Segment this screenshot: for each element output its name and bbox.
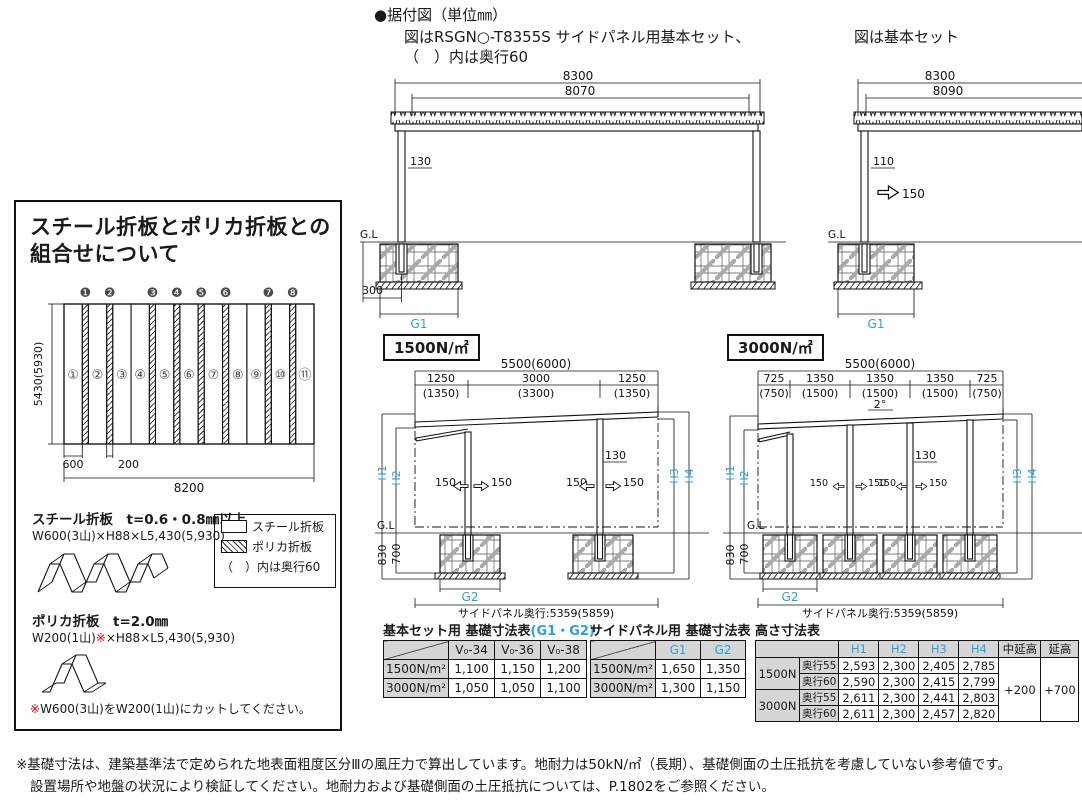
basic-col-v036: V₀-36	[495, 641, 541, 660]
svg-text:(1500): (1500)	[922, 387, 959, 400]
svg-text:1350: 1350	[926, 372, 954, 385]
height-table: H1 H2 H3 H4 中延高 延高 1500N 奥行55 2,593 2,30…	[755, 640, 1079, 722]
steel-plate-spec: W600(3山)×H88×L5,430(5,930)	[32, 527, 225, 544]
elev-sp-gl-label: G.L	[360, 229, 377, 241]
table-row: 3000N/m² 1,300 1,150	[591, 679, 746, 698]
combination-panel-title: スチール折板とポリカ折板との 組合せについて	[30, 214, 331, 268]
legend-box: スチール折板 ポリカ折板 （ ）内は奥行60	[214, 514, 336, 588]
sec3000-gl-label: G.L	[747, 520, 764, 532]
combination-title-line1: スチール折板とポリカ折板との	[30, 214, 331, 241]
poly-spec-post: ×H88×L5,430(5,930)	[106, 631, 235, 645]
svg-text:①: ①	[67, 368, 79, 383]
sec3000-post-3	[907, 423, 913, 554]
table-row: G1 G2	[591, 641, 746, 660]
table-row: 3000N/m² 1,050 1,050 1,100	[384, 679, 587, 698]
elev-basic-gl-label: G.L	[828, 229, 845, 241]
basic-table-title: 基本セット用 基礎寸法表(G1・G2)	[383, 620, 595, 639]
svg-text:700: 700	[390, 544, 403, 565]
caption-left-line2: （ ）内は奥行60	[404, 48, 750, 68]
svg-text:(1500): (1500)	[802, 387, 839, 400]
sec1500-depth-dim: サイドパネル奥行:5359(5859)	[415, 598, 658, 620]
svg-text:8300: 8300	[925, 69, 956, 83]
legend-steel-row: スチール折板	[215, 515, 335, 535]
strip-layout-diagram: ❶ ❷ ❸ ❹ ❺ ❻ ❼ ❽ ① ② ③ ④ ⑤ ⑥ ⑦ ⑧ ⑨ ⑩ ⑪ 54…	[22, 266, 332, 498]
sec3000-130-dim: 130	[915, 449, 936, 462]
svg-text:⑨: ⑨	[250, 368, 262, 383]
side-table-corner	[591, 641, 656, 660]
svg-text:5500(6000): 5500(6000)	[501, 357, 571, 371]
table-row: 1500N 奥行55 2,593 2,300 2,405 2,785 +200 …	[756, 658, 1079, 674]
svg-text:(750): (750)	[972, 387, 1002, 400]
svg-text:725: 725	[764, 372, 785, 385]
svg-text:❹: ❹	[171, 286, 183, 301]
sec1500-left-foundation	[435, 535, 505, 579]
svg-text:150: 150	[435, 476, 456, 489]
svg-text:⑤: ⑤	[159, 368, 171, 383]
footnote-line2: 設置場所や地盤の状況により検証してください。地耐力および基礎側面の土圧抵抗につい…	[16, 777, 1011, 799]
svg-text:⑪: ⑪	[298, 368, 311, 383]
elev-sp-roof-corrugation	[391, 112, 764, 124]
elev-basic-wind-arrow: 150	[878, 186, 925, 201]
table-row: H1 H2 H3 H4 中延高 延高	[756, 641, 1079, 658]
svg-text:H4: H4	[1026, 468, 1039, 483]
svg-text:H1: H1	[724, 465, 737, 480]
elevation-basic-set: 8300 8090 110 150 G.L G1	[828, 70, 1082, 332]
svg-text:H3: H3	[1011, 468, 1024, 483]
svg-text:8300: 8300	[563, 69, 594, 83]
combination-title-line2: 組合せについて	[30, 241, 331, 268]
svg-text:1350: 1350	[866, 372, 894, 385]
svg-text:④: ④	[134, 368, 146, 383]
section-3000n: 5500(6000) 725 1350 1350 1350 725 (750) …	[723, 358, 1082, 622]
sec1500-gl-label: G.L	[377, 520, 394, 532]
svg-text:(1350): (1350)	[423, 387, 460, 400]
sec1500-right-post	[597, 419, 603, 554]
elev-sp-beam	[395, 124, 758, 131]
elev-sp-left-column	[398, 131, 405, 242]
svg-text:725: 725	[977, 372, 998, 385]
svg-text:H2: H2	[390, 470, 403, 485]
poly-spec-pre: W200(1山)	[32, 631, 96, 645]
mid-extension-value: +200	[999, 658, 1041, 722]
svg-text:150: 150	[902, 187, 925, 201]
caption-right: 図は基本セット	[854, 28, 959, 48]
svg-text:⑥: ⑥	[183, 368, 195, 383]
elev-sp-dimensions: 8300 8070	[395, 69, 760, 116]
installation-diagram-page: { "header": { "title": "●据付図（単位㎜）", "cap…	[0, 0, 1082, 809]
svg-text:サイドパネル奥行:5359(5859): サイドパネル奥行:5359(5859)	[802, 606, 958, 620]
poly-strip-numbers: ❶ ❷ ❸ ❹ ❺ ❻ ❼ ❽	[79, 286, 298, 301]
svg-text:③: ③	[116, 368, 128, 383]
svg-text:G1: G1	[411, 317, 428, 331]
elev-basic-beam	[858, 124, 1082, 131]
basic-foundation-table: V₀-34 V₀-36 V₀-38 1500N/m² 1,100 1,150 1…	[383, 640, 587, 698]
cut-note-text: W600(3山)をW200(1山)にカットしてください。	[40, 702, 311, 716]
table-row: V₀-34 V₀-36 V₀-38	[384, 641, 587, 660]
caption-left-line1: 図はRSGN○-T8355S サイドパネル用基本セット、	[404, 28, 750, 48]
poly-plate-profile-icon	[38, 650, 133, 698]
svg-text:5430(5930): 5430(5930)	[32, 342, 45, 407]
steel-plate-profile-icon	[34, 546, 174, 600]
svg-text:⑦: ⑦	[208, 368, 220, 383]
svg-text:H2: H2	[738, 470, 751, 485]
svg-text:H3: H3	[668, 468, 681, 483]
poly-plate-spec: W200(1山)※×H88×L5,430(5,930)	[32, 629, 235, 646]
svg-text:(750): (750)	[759, 387, 789, 400]
elev-basic-foundation	[834, 244, 922, 289]
elev-basic-roof-corrugation	[854, 112, 1082, 124]
svg-text:G1: G1	[868, 317, 885, 331]
sec3000-post-4	[967, 420, 973, 554]
table-row: 1500N/m² 1,650 1,350	[591, 660, 746, 679]
sec3000-foundations	[760, 535, 1000, 579]
cut-note-mark: ※	[30, 702, 40, 716]
svg-text:G2: G2	[462, 590, 479, 604]
legend-steel-label: スチール折板	[252, 518, 324, 535]
svg-text:5500(6000): 5500(6000)	[845, 357, 915, 371]
footnote-line1: ※基礎寸法は、建築基準法で定められた地表面粗度区分Ⅲの風圧力で算出しています。地…	[16, 755, 1011, 777]
svg-text:150: 150	[929, 478, 947, 489]
basic-table-title-text: 基本セット用 基礎寸法表	[383, 624, 531, 639]
svg-text:❸: ❸	[147, 286, 159, 301]
svg-text:⑩: ⑩	[275, 368, 287, 383]
svg-text:②: ②	[92, 368, 104, 383]
svg-text:(1350): (1350)	[614, 387, 651, 400]
elev-basic-column	[861, 131, 868, 242]
height-table-title: 高さ寸法表	[755, 620, 820, 639]
svg-text:H4: H4	[683, 468, 696, 483]
side-panel-foundation-table: G1 G2 1500N/m² 1,650 1,350 3000N/m² 1,30…	[590, 640, 746, 698]
sec3000-roof	[758, 414, 1003, 442]
load-badge-1500: 1500N/㎡	[383, 334, 480, 361]
basic-col-v034: V₀-34	[449, 641, 495, 660]
elev-sp-left-foundation	[376, 244, 462, 289]
svg-text:❽: ❽	[287, 286, 299, 301]
basic-col-v038: V₀-38	[541, 641, 587, 660]
svg-text:⑧: ⑧	[232, 368, 244, 383]
elev-sp-right-foundation	[691, 244, 775, 289]
basic-table-corner	[384, 641, 449, 660]
svg-text:❼: ❼	[262, 286, 274, 301]
poly-swatch-icon	[221, 540, 247, 553]
poly-spec-mark: ※	[96, 631, 106, 645]
svg-text:❷: ❷	[104, 286, 116, 301]
svg-text:830: 830	[376, 545, 389, 566]
sec1500-130-dim: 130	[605, 449, 626, 462]
svg-text:(3300): (3300)	[518, 387, 555, 400]
legend-poly-row: ポリカ折板	[215, 535, 335, 555]
sec3000-g2-dim: G2	[763, 579, 817, 604]
svg-text:150: 150	[623, 476, 644, 489]
elev-basic-gap-dim: 110	[873, 155, 894, 168]
svg-text:200: 200	[118, 458, 139, 471]
section-1500n: 5500(6000) 1250 3000 1250 (1350) (3300) …	[375, 358, 709, 622]
sec1500-top-dims: 5500(6000) 1250 3000 1250 (1350) (3300) …	[415, 357, 658, 414]
elevation-side-panel-set: 8300 8070 130 G.L 300 G1	[358, 70, 788, 332]
sec1500-roof	[415, 412, 658, 441]
svg-text:8070: 8070	[565, 84, 596, 98]
svg-text:G2: G2	[782, 590, 799, 604]
svg-text:8090: 8090	[933, 84, 964, 98]
svg-text:150: 150	[878, 478, 896, 489]
svg-text:700: 700	[738, 544, 751, 565]
caption-left: 図はRSGN○-T8355S サイドパネル用基本セット、 （ ）内は奥行60	[404, 28, 750, 67]
legend-note-label: （ ）内は奥行60	[221, 558, 320, 575]
svg-text:1250: 1250	[427, 372, 455, 385]
elev-sp-right-column	[753, 131, 760, 242]
steel-swatch-icon	[221, 520, 247, 533]
elev-basic-dimensions: 8300 8090	[858, 69, 1082, 116]
svg-text:8200: 8200	[174, 481, 205, 495]
side-col-g2: G2	[701, 641, 746, 660]
side-col-g1: G1	[656, 641, 701, 660]
table-row: 1500N/m² 1,100 1,150 1,200	[384, 660, 587, 679]
elev-basic-g1-dim: G1	[838, 289, 914, 331]
height-table-corner	[756, 641, 839, 658]
combination-panel: スチール折板とポリカ折板との 組合せについて ❶ ❷ ❸	[14, 200, 342, 731]
svg-text:❻: ❻	[220, 286, 232, 301]
sec3000-top-dims: 5500(6000) 725 1350 1350 1350 725 (750) …	[758, 357, 1003, 416]
elev-sp-g1-dim: G1	[380, 289, 458, 331]
cut-note: ※W600(3山)をW200(1山)にカットしてください。	[30, 700, 311, 717]
svg-text:H1: H1	[376, 465, 389, 480]
extension-value: +700	[1041, 658, 1079, 722]
svg-text:2°: 2°	[874, 398, 887, 411]
svg-text:サイドパネル奥行:5359(5859): サイドパネル奥行:5359(5859)	[458, 606, 614, 620]
sec3000-anchor-arrows: 150 150 150 150	[810, 478, 947, 490]
svg-text:1350: 1350	[806, 372, 834, 385]
load-badge-3000: 3000N/㎡	[727, 334, 824, 361]
basic-table-title-sub: (G1・G2)	[531, 624, 595, 639]
svg-text:150: 150	[491, 476, 512, 489]
legend-note-row: （ ）内は奥行60	[215, 555, 335, 575]
legend-poly-label: ポリカ折板	[252, 538, 312, 555]
poly-plate-title: ポリカ折板 t=2.0㎜	[32, 610, 168, 630]
sec1500-right-foundation	[568, 535, 638, 579]
svg-text:600: 600	[63, 458, 84, 471]
svg-text:1250: 1250	[618, 372, 646, 385]
svg-text:3000: 3000	[522, 372, 550, 385]
svg-text:830: 830	[724, 545, 737, 566]
elev-sp-gap-dim: 130	[410, 155, 431, 168]
svg-text:150: 150	[810, 478, 828, 489]
footnote: ※基礎寸法は、建築基準法で定められた地表面粗度区分Ⅲの風圧力で算出しています。地…	[16, 755, 1011, 798]
page-title: ●据付図（単位㎜）	[374, 6, 507, 26]
svg-text:❶: ❶	[79, 286, 91, 301]
svg-text:❺: ❺	[195, 286, 207, 301]
sec1500-g2-dim: G2	[440, 579, 500, 604]
side-table-title: サイドパネル用 基礎寸法表	[590, 620, 751, 639]
